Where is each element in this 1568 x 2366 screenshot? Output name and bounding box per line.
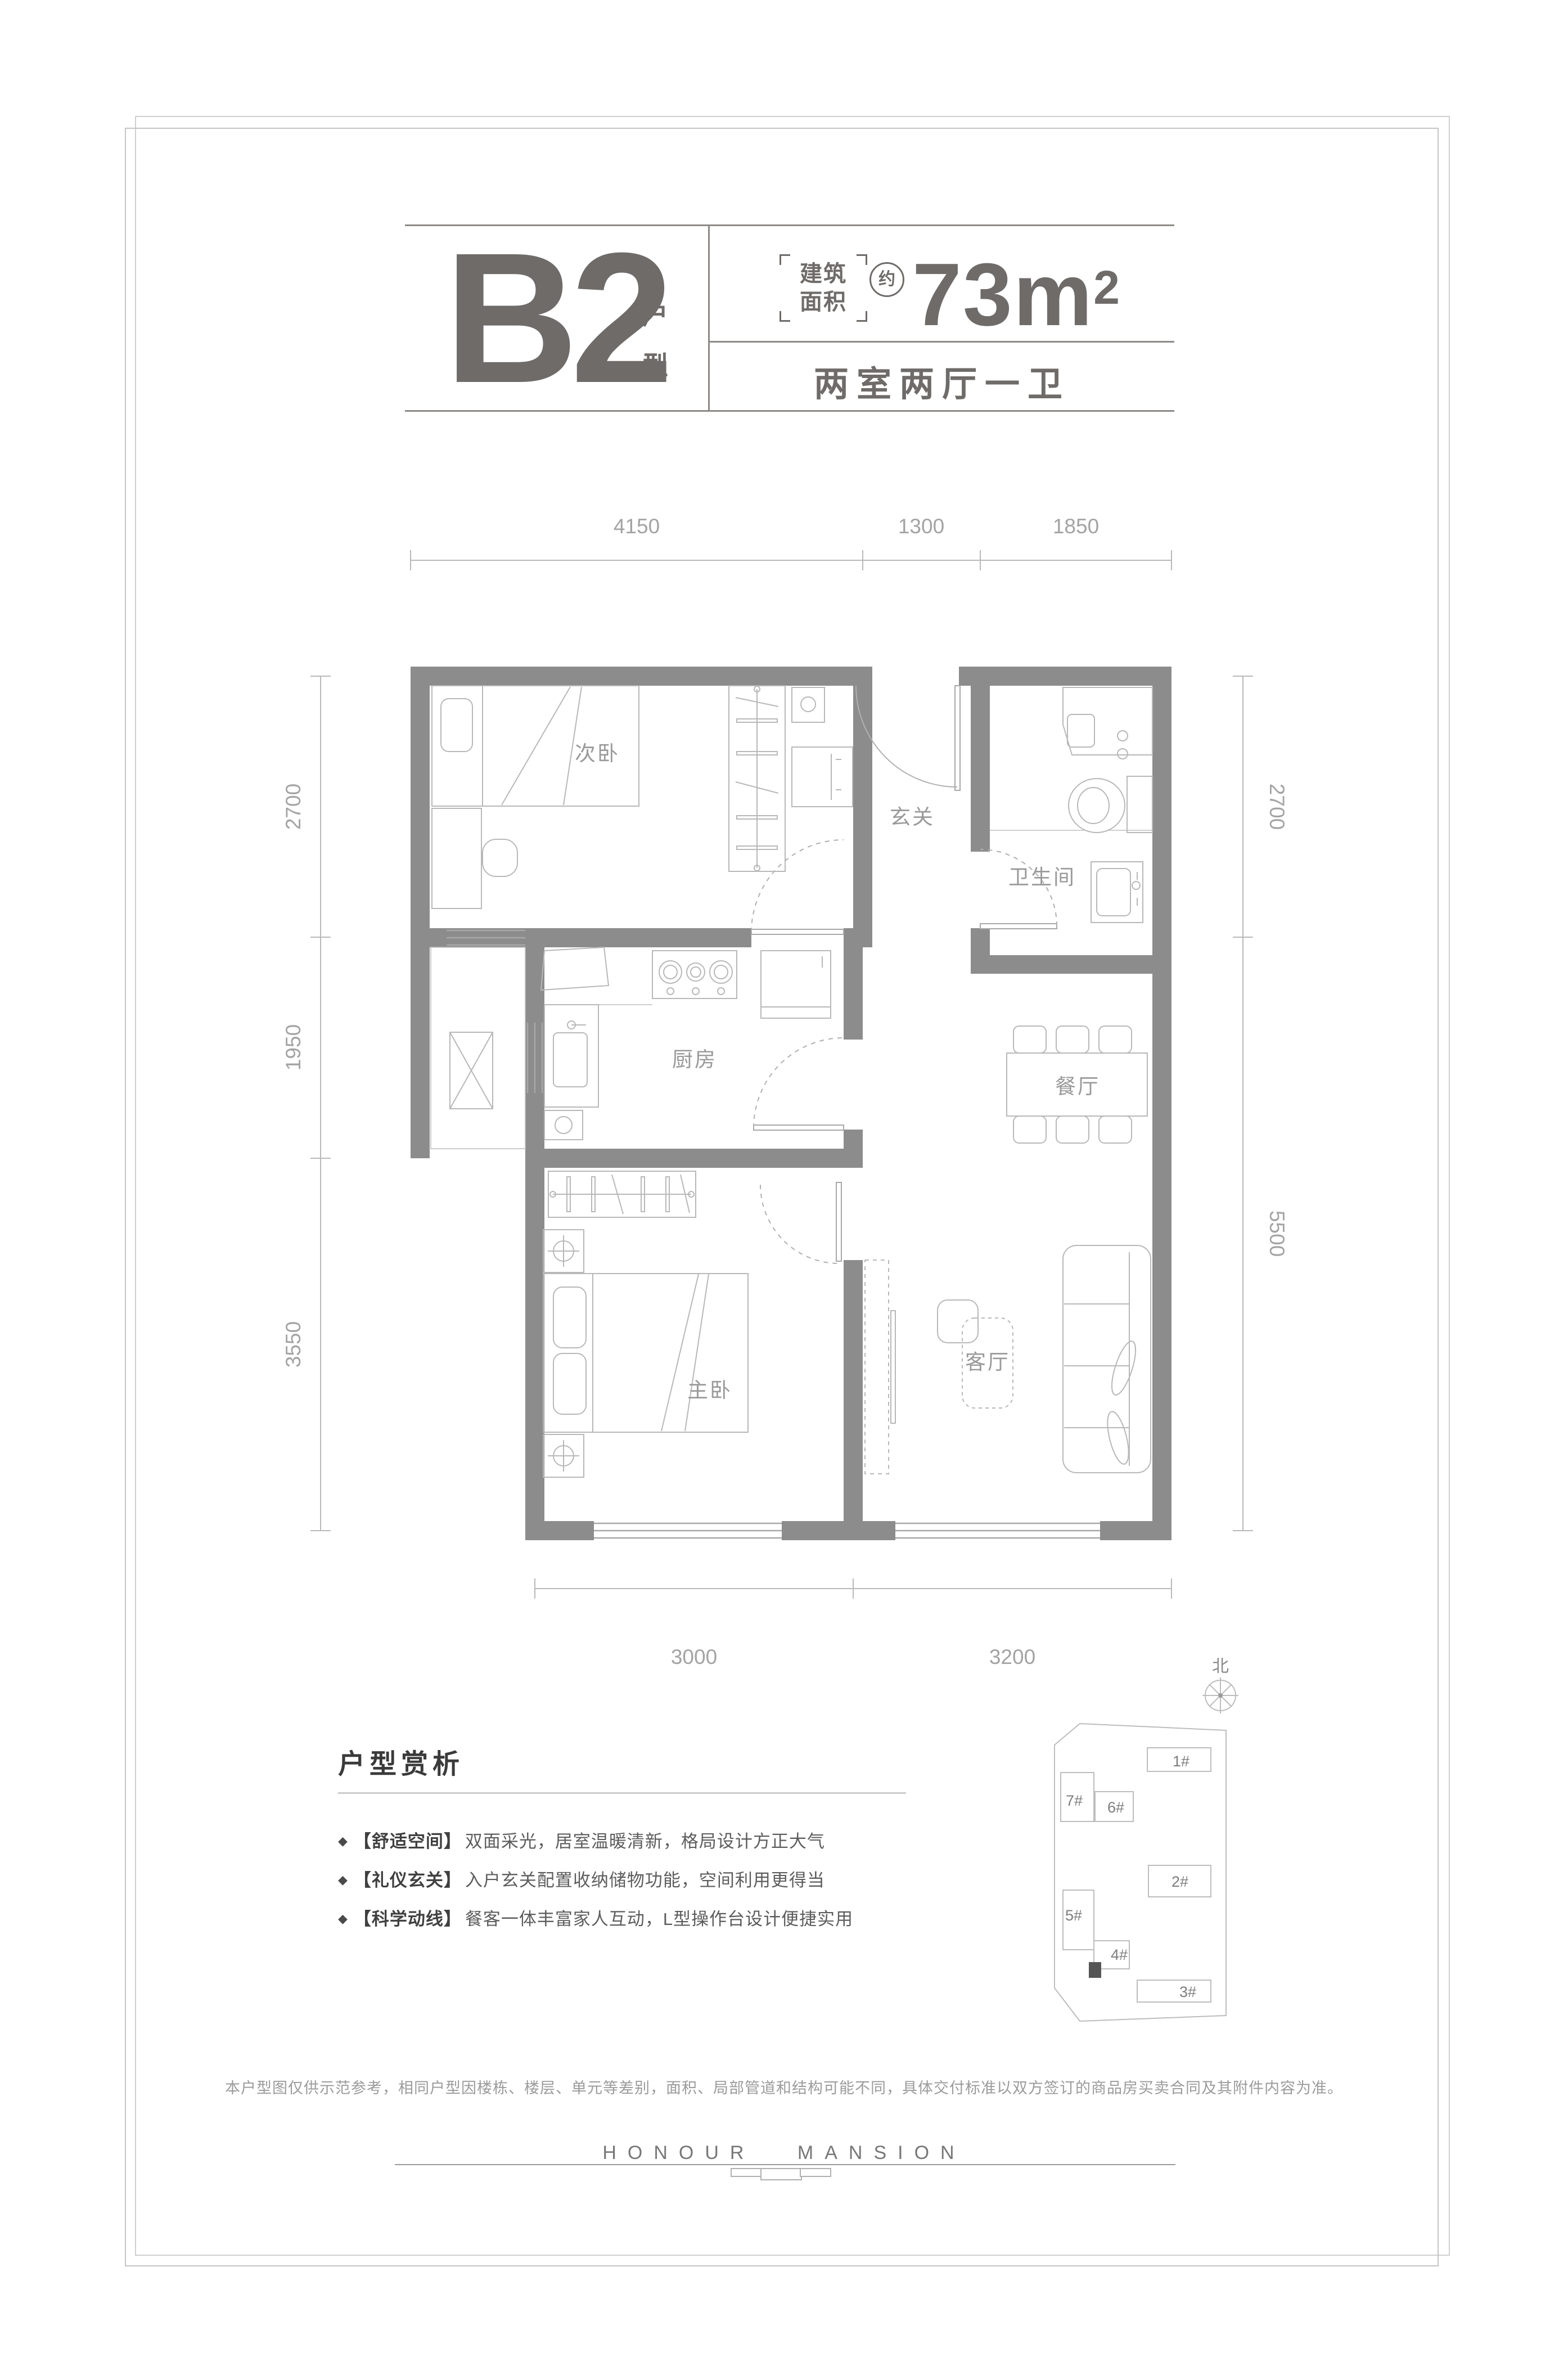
unit-code-text: B2 (444, 214, 666, 421)
room-label-bedroom2: 次卧 (575, 742, 620, 765)
building-label-4: 4# (1111, 1946, 1128, 1963)
site-plan: 北 1# 7# 6# 2# 5# 4# 3# (1029, 1631, 1299, 2048)
area-value: 73m2 (912, 245, 1121, 337)
analysis-bullet-1: ◆【舒适空间】双面采光，居室温暖清新，格局设计方正大气 (338, 1827, 825, 1852)
area-tag-line1: 建筑 (786, 260, 860, 288)
dim-right-1: 2700 (1265, 784, 1288, 830)
utility-platform (431, 947, 525, 1149)
master-door-arc (760, 1185, 839, 1263)
area-tag-box: 建筑 面积 (786, 260, 860, 316)
brand-underline (395, 2164, 1175, 2165)
building-label-7: 7# (1066, 1792, 1083, 1809)
north-label: 北 (1212, 1657, 1229, 1676)
unit-suffix-1: 户 (642, 295, 668, 332)
bracket-corner-tl-icon (780, 254, 790, 265)
diamond-icon: ◆ (338, 1873, 348, 1887)
building-3 (1137, 1980, 1211, 2002)
bedroom2-door-leaf (751, 929, 844, 934)
analysis-rule (338, 1792, 906, 1794)
dimension-left: 2700 1950 3550 (282, 676, 331, 1531)
brand-logo-left (731, 2168, 763, 2177)
bullet-1-text: 双面采光，居室温暖清新，格局设计方正大气 (465, 1832, 825, 1851)
floorplan-poster: B2 户 型 建筑 面积 约 73m2 两室两厅一卫 4150 1300 185… (0, 0, 1568, 2366)
area-superscript: 2 (1093, 261, 1121, 314)
bullet-3-tag: 【科学动线】 (354, 1909, 462, 1929)
dim-bottom-2: 3200 (989, 1645, 1035, 1668)
doors (751, 686, 1057, 1263)
room-label-master: 主卧 (687, 1379, 732, 1402)
room-label-living: 客厅 (965, 1351, 1010, 1374)
dim-top-1: 4150 (614, 515, 660, 538)
approx-badge: 约 (869, 262, 904, 297)
dim-right-2: 5500 (1265, 1211, 1288, 1257)
building-label-1: 1# (1173, 1753, 1189, 1770)
dim-top-2: 1300 (898, 515, 944, 538)
unit-suffix-2: 型 (642, 345, 668, 383)
room-label-bathroom: 卫生间 (1008, 866, 1076, 889)
dim-left-2: 1950 (282, 1024, 305, 1070)
analysis-bullet-3: ◆【科学动线】餐客一体丰富家人互动，L型操作台设计便捷实用 (338, 1905, 853, 1930)
compass: 北 (1202, 1657, 1238, 1713)
area-value-number: 73m (912, 245, 1093, 344)
brand-logo-center (760, 2168, 802, 2180)
analysis-bullet-2: ◆【礼仪玄关】入户玄关配置收纳储物功能，空间利用更得当 (338, 1866, 825, 1891)
building-label-2: 2# (1172, 1873, 1188, 1890)
analysis-title: 户型赏析 (338, 1742, 464, 1781)
dim-bottom-1: 3000 (671, 1645, 717, 1668)
layout-summary: 两室两厅一卫 (710, 356, 1174, 406)
kitchen-door-arc (754, 1038, 844, 1128)
area-tag-line2: 面积 (786, 288, 860, 316)
room-label-kitchen: 厨房 (672, 1048, 717, 1071)
brand-logo-right (800, 2168, 831, 2177)
master-furniture (543, 1171, 748, 1477)
bracket-corner-bl-icon (780, 311, 790, 322)
master-door-leaf (836, 1182, 841, 1261)
building-label-5: 5# (1065, 1907, 1082, 1924)
bath-door-leaf (980, 924, 1057, 929)
site-boundary (1055, 1724, 1226, 2021)
disclaimer-text: 本户型图仅供示范参考，相同户型因楼栋、楼层、单元等差别，面积、局部管道和结构可能… (0, 2076, 1568, 2098)
dim-top-3: 1850 (1053, 515, 1099, 538)
floor-plan: 4150 1300 1850 2700 1950 3550 2700 5500 … (253, 478, 1322, 1716)
highlighted-unit-marker (1089, 1962, 1101, 1978)
bullet-3-text: 餐客一体丰富家人互动，L型操作台设计便捷实用 (465, 1909, 853, 1929)
building-label-3: 3# (1179, 1983, 1196, 2000)
kitchen-fixtures (541, 947, 831, 1140)
entry-door-leaf (955, 686, 960, 790)
bracket-corner-tr-icon (857, 254, 867, 265)
room-label-foyer: 玄关 (890, 806, 935, 829)
diamond-icon: ◆ (338, 1911, 348, 1926)
brand-text: HONOUR MANSION (0, 2142, 1568, 2164)
diamond-icon: ◆ (338, 1834, 348, 1848)
bracket-corner-br-icon (857, 311, 867, 322)
kitchen-door-leaf (754, 1125, 844, 1130)
room-label-dining: 餐厅 (1055, 1075, 1100, 1098)
dim-left-3: 3550 (282, 1321, 305, 1368)
dim-left-1: 2700 (282, 784, 305, 830)
bullet-2-text: 入户玄关配置收纳储物功能，空间利用更得当 (465, 1870, 825, 1890)
bedroom2-door-arc (751, 840, 844, 932)
site-buildings: 1# 7# 6# 2# 5# 4# 3# (1061, 1748, 1211, 2002)
bedroom2-furniture (432, 686, 853, 908)
unit-code: B2 (444, 239, 666, 397)
bullet-2-tag: 【礼仪玄关】 (354, 1870, 462, 1890)
bullet-1-tag: 【舒适空间】 (354, 1832, 462, 1851)
dimension-top: 4150 1300 1850 (411, 515, 1172, 570)
dimension-right: 2700 5500 (1233, 676, 1288, 1531)
building-label-6: 6# (1107, 1799, 1124, 1816)
